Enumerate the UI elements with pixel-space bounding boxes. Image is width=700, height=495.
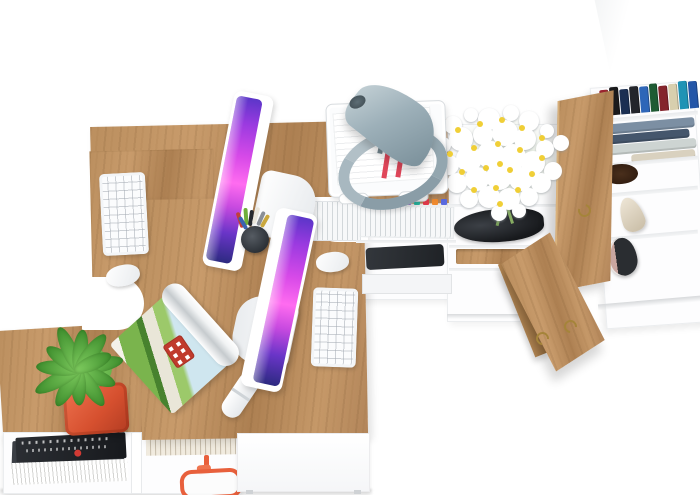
folders-row: [360, 205, 455, 239]
underdesk-cabinet: [237, 433, 370, 492]
paper-fan: [10, 459, 129, 485]
cabinet-foot: [354, 490, 361, 494]
cabinet-foot: [246, 490, 253, 494]
pencil-cup-group: [236, 210, 274, 256]
daisy-centers: [497, 161, 503, 167]
file-cabinet-drawer: [362, 274, 452, 294]
desk-lamp: [330, 88, 445, 198]
magazine-text-lines: [26, 445, 106, 452]
wardrobe-top-panel: [574, 0, 700, 92]
file-cabinet-shelf: [356, 240, 456, 243]
render-canvas: Top-down 3D render of a white and oak of…: [0, 0, 700, 495]
orange-glasses: [179, 467, 242, 495]
book-spine: [629, 86, 640, 114]
book-spine: [619, 89, 630, 115]
magazine-red-house: [162, 334, 195, 369]
keyboard-1: [99, 172, 149, 256]
potted-plant: [22, 318, 150, 446]
scene-caption: Top-down 3D render of a white and oak of…: [0, 0, 1, 1]
pencil-cup: [241, 226, 269, 253]
book-spine: [639, 86, 650, 113]
magazine-red-dot: [74, 449, 81, 456]
house-windows: [168, 346, 174, 352]
dark-laptop: [365, 244, 444, 270]
